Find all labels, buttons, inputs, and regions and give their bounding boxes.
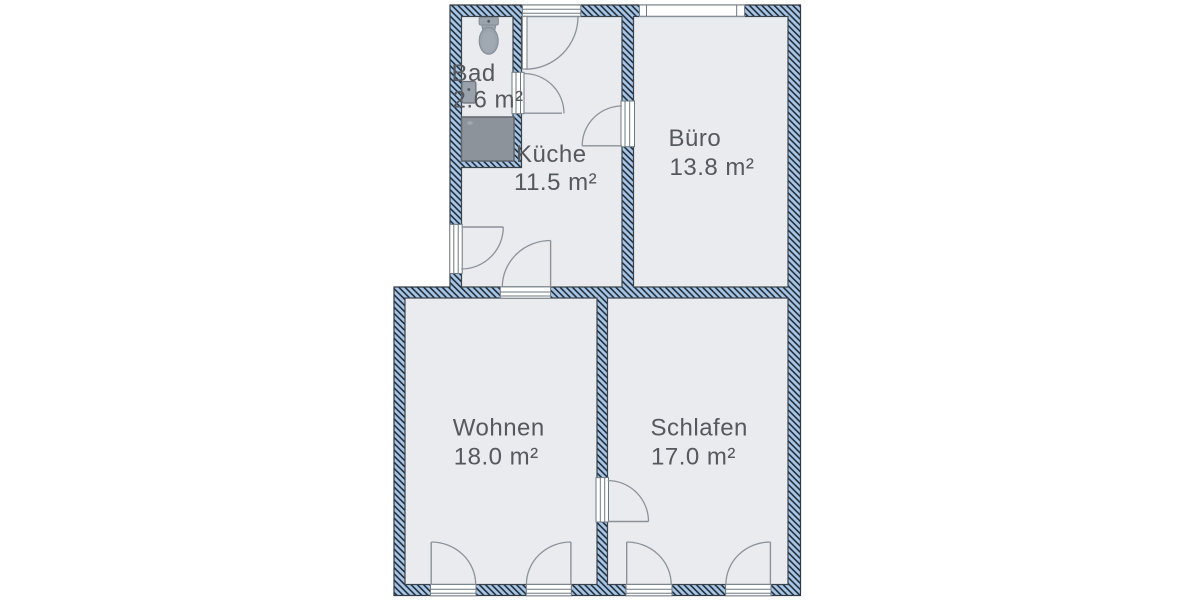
- svg-text:13.8 m²: 13.8 m²: [670, 154, 755, 181]
- svg-text:18.0 m²: 18.0 m²: [454, 444, 539, 471]
- svg-text:Büro: Büro: [669, 125, 722, 152]
- svg-text:Bad: Bad: [452, 60, 496, 87]
- svg-text:Wohnen: Wohnen: [453, 415, 545, 442]
- svg-text:Küche: Küche: [516, 141, 587, 168]
- svg-text:Schlafen: Schlafen: [651, 415, 748, 442]
- svg-text:11.5 m²: 11.5 m²: [514, 169, 597, 196]
- svg-text:17.0 m²: 17.0 m²: [651, 444, 736, 471]
- svg-text:2.6 m²: 2.6 m²: [453, 87, 524, 114]
